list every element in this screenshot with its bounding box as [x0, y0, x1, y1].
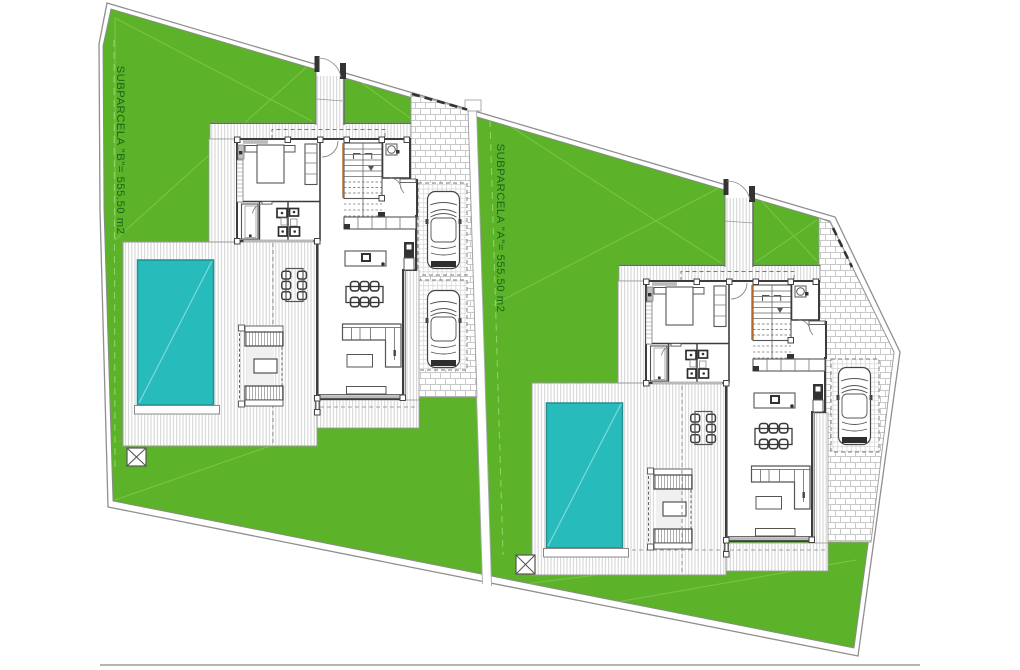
svg-text:SUBPARCELA "A"= 555.50 m2: SUBPARCELA "A"= 555.50 m2	[494, 144, 506, 313]
svg-text:SUBPARCELA "B"= 555.50 m2: SUBPARCELA "B"= 555.50 m2	[114, 66, 126, 235]
